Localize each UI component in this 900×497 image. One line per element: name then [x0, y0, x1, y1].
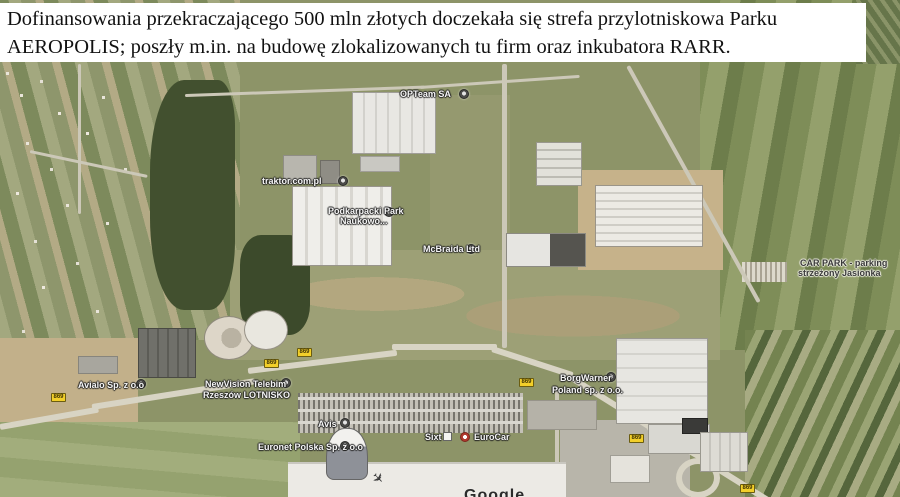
label-park-naukowy-line1[interactable]: Podkarpacki Park: [328, 206, 404, 216]
building-under-construction: [595, 185, 703, 247]
building-site-small: [78, 356, 118, 374]
label-newvision-line2[interactable]: Rzeszów LOTNISKO: [203, 390, 290, 400]
label-mcbraida[interactable]: McBraida Ltd: [423, 244, 480, 254]
road-badge-869: 869: [519, 378, 534, 387]
traktor-marker-icon[interactable]: [338, 176, 348, 186]
label-avialo[interactable]: Avialo Sp. z o.o: [78, 380, 144, 390]
label-newvision-line1[interactable]: NewVision Telebim: [205, 379, 286, 389]
caption-line2: AEROPOLIS; poszły m.in. na budowę zlokal…: [7, 33, 866, 61]
label-avis[interactable]: Avis: [318, 419, 337, 429]
forest-strip: [150, 80, 235, 310]
road-vertical: [502, 64, 507, 348]
label-eurocar[interactable]: EuroCar: [474, 432, 510, 442]
building-white-right: [700, 432, 748, 472]
google-watermark: Google: [464, 487, 525, 497]
sixt-logo-icon[interactable]: [443, 432, 452, 441]
road-badge-869: 869: [51, 393, 66, 402]
label-car-park-line2[interactable]: strzeżony Jasionka: [798, 268, 881, 278]
avis-marker-icon[interactable]: [340, 418, 350, 428]
terminal-building: [326, 428, 368, 480]
label-car-park-line1[interactable]: CAR PARK - parking: [800, 258, 887, 268]
caption-line1: Dofinansowania przekraczającego 500 mln …: [7, 5, 866, 33]
eurocar-logo-icon[interactable]: [460, 432, 470, 442]
road-top: [420, 75, 580, 89]
label-opteam[interactable]: OPTeam SA: [400, 89, 451, 99]
caption-overlay: Dofinansowania przekraczającego 500 mln …: [0, 3, 866, 62]
striped-fields-bottom-right: [745, 330, 900, 497]
mid-green-band: [430, 95, 510, 250]
road-residential: [78, 64, 81, 214]
label-borgwarner-line1[interactable]: BorgWarner: [560, 373, 612, 383]
building-exhibition-hall: [138, 328, 196, 378]
satellite-map[interactable]: ✈ 869 869 869 869 869 869 OPTeam SA trak…: [0, 0, 900, 497]
building-cluster: [320, 160, 340, 184]
label-euronet[interactable]: Euronet Polska Sp. z o.o: [258, 442, 363, 452]
parking-rows-small: [527, 400, 597, 430]
building-warehouse-opteam: [352, 92, 436, 154]
building-round-two: [244, 310, 288, 350]
label-sixt[interactable]: Sixt: [425, 432, 442, 442]
building-borgwarner: [616, 338, 708, 424]
label-borgwarner-line2[interactable]: Poland sp. z o.o.: [552, 385, 623, 395]
road-segment: [392, 344, 497, 350]
airport-grass: [0, 422, 300, 497]
building-annex: [360, 156, 400, 172]
building-warehouse-small: [536, 142, 582, 186]
building-white-small-right: [610, 455, 650, 483]
road-badge-869: 869: [740, 484, 755, 493]
opteam-marker-icon[interactable]: [459, 89, 469, 99]
house-dots: [6, 72, 9, 75]
road-badge-869: 869: [297, 348, 312, 357]
label-park-naukowy-line2[interactable]: Naukowo...: [340, 216, 388, 226]
label-traktor[interactable]: traktor.com.pl: [262, 176, 322, 186]
building-park-naukowy: [292, 186, 392, 266]
building-mcbraida: [506, 233, 586, 267]
road-badge-869: 869: [264, 359, 279, 368]
road-badge-869: 869: [629, 434, 644, 443]
